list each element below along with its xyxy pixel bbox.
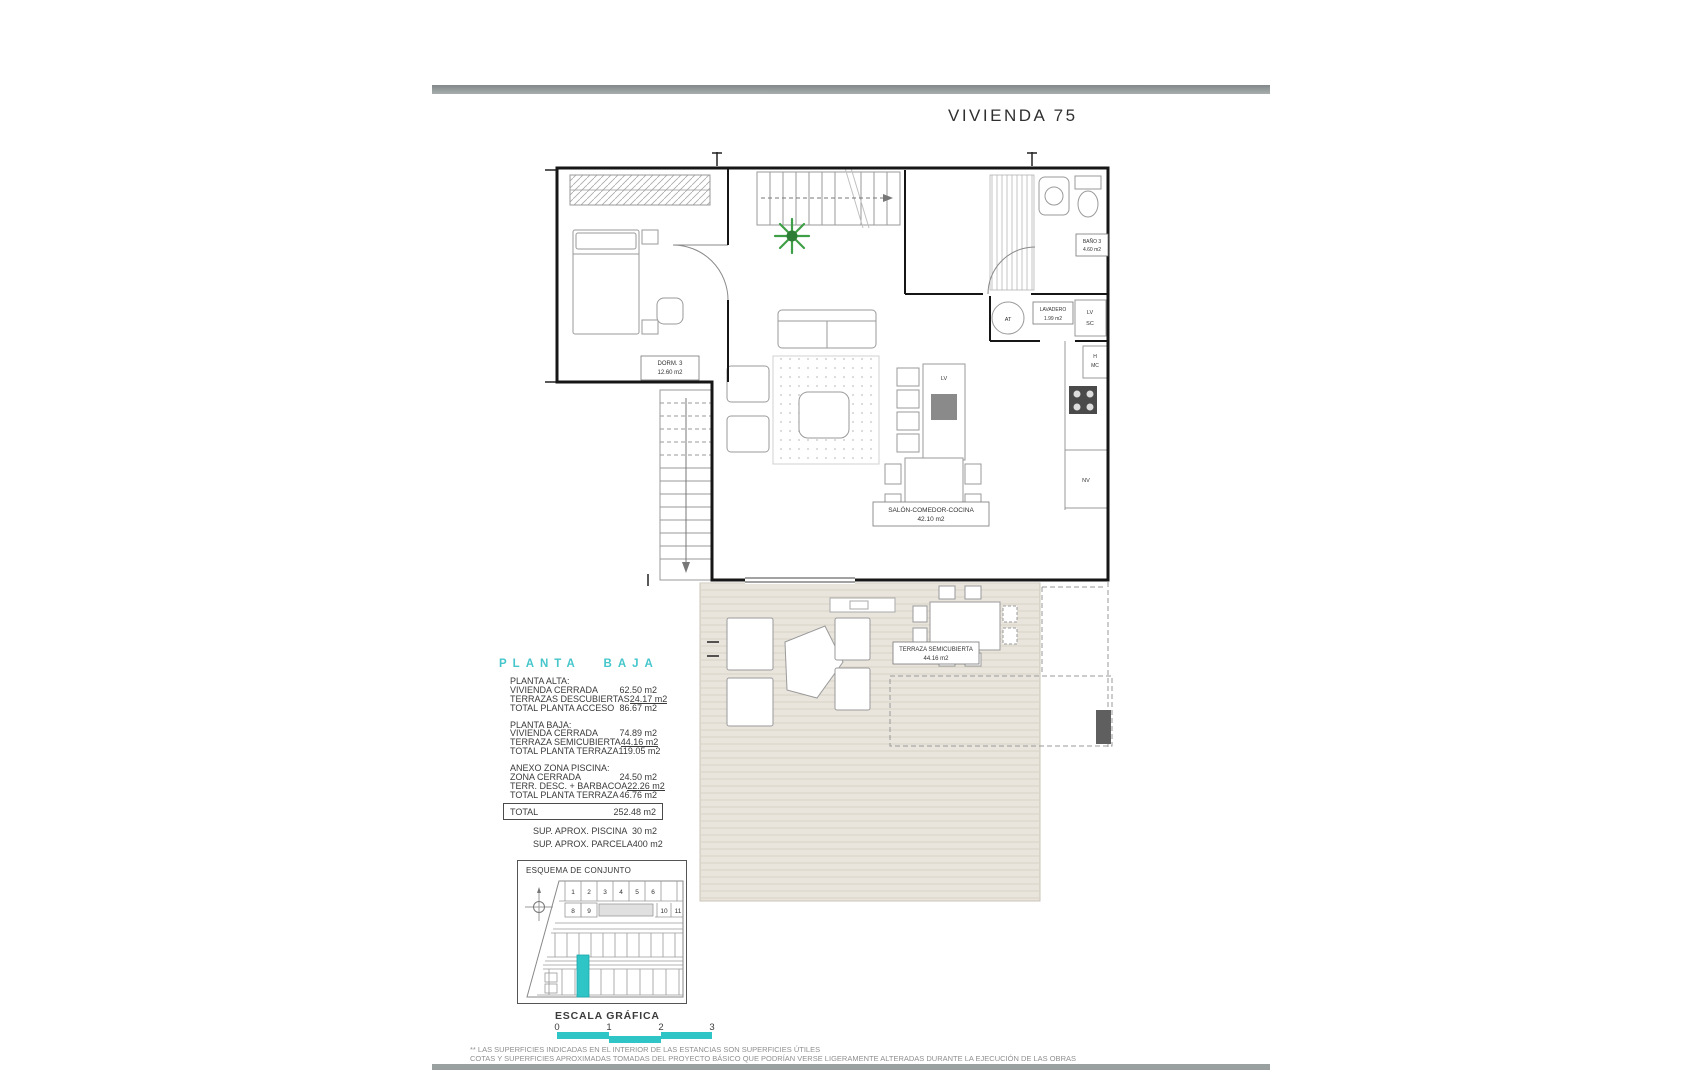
site-plan-box: ESQUEMA DE CONJUNTO 1 <box>517 860 687 1004</box>
table-row: SUP. APROX. PISCINA30 m2 <box>533 825 657 838</box>
wardrobe <box>570 175 710 205</box>
svg-text:4: 4 <box>619 889 623 896</box>
table-row: TOTAL PLANTA TERRAZA119.05 m2 <box>510 747 657 756</box>
terrace-step <box>830 598 895 612</box>
table-row: SUP. APROX. PARCELA400 m2 <box>533 838 657 851</box>
graphic-scale: ESCALA GRÁFICA 0 1 2 3 <box>553 1010 728 1044</box>
total-row: TOTAL 252.48 m2 <box>503 803 663 820</box>
tag-lv-island: LV <box>941 376 948 382</box>
area-summary-table: PLANTA ALTA: VIVIENDA CERRADA62.50 m2 TE… <box>510 677 657 808</box>
footnote-line: COTAS Y SUPERFICIES APROXIMADAS TOMADAS … <box>470 1055 1076 1064</box>
room-label-lavadero: LAVADERO 1.99 m2 <box>1033 302 1073 324</box>
svg-text:10: 10 <box>660 908 668 915</box>
area-label: TOTAL PLANTA ACCESO <box>510 704 614 713</box>
area-label: SUP. APROX. PARCELA <box>533 838 633 851</box>
kitchen-counter: NV H MC <box>1065 341 1108 510</box>
area-label: SUP. APROX. PISCINA <box>533 825 627 838</box>
svg-text:4.60 m2: 4.60 m2 <box>1083 247 1101 253</box>
room-label-salon: SALÓN-COMEDOR-COCINA 42.10 m2 <box>873 502 989 526</box>
svg-text:DORM. 3: DORM. 3 <box>657 361 683 367</box>
exterior-stairs <box>660 390 712 580</box>
area-value: 119.05 m2 <box>619 747 661 756</box>
footnotes: ** LAS SUPERFICIES INDICADAS EN EL INTER… <box>470 1046 1076 1063</box>
tag-nv: NV <box>1082 478 1090 484</box>
room-label-terraza: TERRAZA SEMICUBIERTA 44.16 m2 <box>893 642 979 664</box>
plant <box>775 219 809 253</box>
area-value: 86.67 m2 <box>619 704 657 713</box>
island-sink <box>931 394 957 420</box>
area-value: 30 m2 <box>632 825 657 838</box>
kitchen-island: LV <box>897 364 965 460</box>
svg-text:9: 9 <box>587 908 591 915</box>
svg-text:BAÑO 3: BAÑO 3 <box>1083 238 1102 245</box>
svg-text:3: 3 <box>603 889 607 896</box>
scale-ticks: 0 1 2 3 <box>553 1022 728 1032</box>
table-row: TOTAL PLANTA ACCESO86.67 m2 <box>510 704 657 713</box>
total-label: TOTAL <box>510 807 538 817</box>
bedroom-door-swing <box>673 245 728 300</box>
table-row: TOTAL PLANTA TERRAZA46.76 m2 <box>510 791 657 800</box>
highlighted-plot <box>577 955 589 997</box>
svg-text:12.60 m2: 12.60 m2 <box>657 370 683 376</box>
area-label: TOTAL PLANTA TERRAZA <box>510 791 619 800</box>
terrace-stair-block <box>1096 710 1111 744</box>
area-label: TOTAL PLANTA TERRAZA <box>510 747 619 756</box>
hob <box>1069 386 1097 414</box>
svg-text:1.99 m2: 1.99 m2 <box>1044 316 1062 322</box>
tag-mc: MC <box>1091 363 1099 369</box>
area-value: 400 m2 <box>633 838 663 851</box>
top-divider-bar <box>432 85 1270 94</box>
section-planta-baja: PLANTA BAJA: VIVIENDA CERRADA74.89 m2 TE… <box>510 721 657 757</box>
site-plan-title: ESQUEMA DE CONJUNTO <box>526 866 631 875</box>
bedroom-chair <box>657 298 683 324</box>
sliding-door <box>745 576 855 584</box>
site-plan: 1 2 3 4 5 6 8 9 10 11 <box>519 877 685 1001</box>
interior-stairs <box>757 168 900 228</box>
compass-icon <box>525 887 553 921</box>
bed <box>573 230 683 334</box>
tag-sc: SC <box>1086 321 1094 327</box>
tag-at: AT <box>1005 317 1012 323</box>
drawing-sheet: VIVIENDA 75 <box>0 0 1700 1080</box>
section-anexo-piscina: ANEXO ZONA PISCINA: ZONA CERRADA24.50 m2… <box>510 764 657 800</box>
svg-text:44.16 m2: 44.16 m2 <box>923 656 949 662</box>
svg-text:11: 11 <box>675 908 682 915</box>
total-value: 252.48 m2 <box>613 807 656 817</box>
bottom-divider-bar <box>432 1064 1270 1070</box>
tag-h: H <box>1093 354 1097 360</box>
svg-text:TERRAZA SEMICUBIERTA: TERRAZA SEMICUBIERTA <box>899 647 973 653</box>
room-label-bano3: BAÑO 3 4.60 m2 <box>1076 234 1108 256</box>
svg-text:42.10 m2: 42.10 m2 <box>917 516 944 523</box>
room-label-dorm3: DORM. 3 12.60 m2 <box>641 356 699 380</box>
svg-text:6: 6 <box>651 889 655 896</box>
svg-text:SALÓN-COMEDOR-COCINA: SALÓN-COMEDOR-COCINA <box>888 505 974 514</box>
coffee-table <box>799 392 849 438</box>
scale-title: ESCALA GRÁFICA <box>555 1010 728 1022</box>
svg-text:5: 5 <box>635 889 639 896</box>
area-value: 46.76 m2 <box>619 791 657 800</box>
tag-lv: LV <box>1087 310 1094 316</box>
extra-areas: SUP. APROX. PISCINA30 m2 SUP. APROX. PAR… <box>533 825 657 851</box>
section-planta-alta: PLANTA ALTA: VIVIENDA CERRADA62.50 m2 TE… <box>510 677 657 713</box>
svg-text:2: 2 <box>587 889 591 896</box>
svg-text:1: 1 <box>571 889 575 896</box>
scale-bar <box>553 1032 728 1044</box>
svg-text:8: 8 <box>571 908 575 915</box>
svg-text:LAVADERO: LAVADERO <box>1040 307 1067 313</box>
sheet-title: VIVIENDA 75 <box>948 106 1078 126</box>
plan-heading: PLANTA BAJA <box>499 658 659 670</box>
